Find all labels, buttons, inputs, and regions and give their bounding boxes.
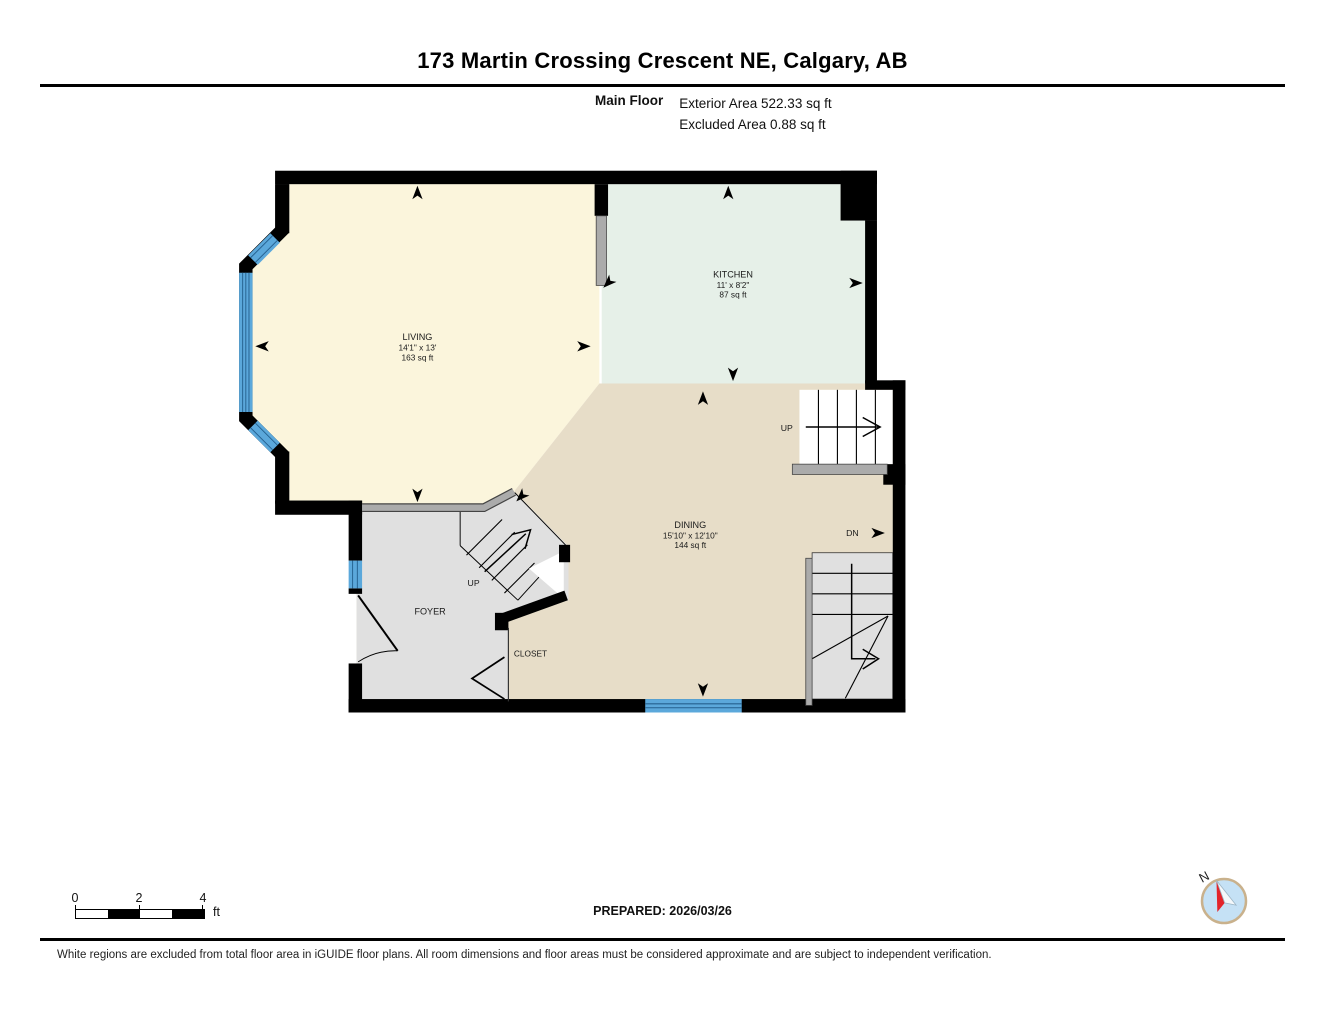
dining-dims: 15'10" x 12'10" [663, 531, 718, 541]
kitchen-dims: 11' x 8'2" [717, 280, 750, 290]
stairs-up-right [799, 390, 892, 464]
living-dims: 14'1" x 13' [398, 342, 436, 352]
closet-label: CLOSET [514, 648, 547, 658]
scale-tick-4: 4 [200, 891, 207, 905]
compass: N [1186, 863, 1262, 939]
dining-label: DINING [674, 520, 706, 530]
living-area: 163 sq ft [402, 353, 435, 363]
exterior-area: Exterior Area 522.33 sq ft [679, 93, 831, 114]
stair-half-wall [792, 464, 887, 474]
living-label: LIVING [403, 332, 433, 342]
foyer-window [349, 561, 362, 589]
page-title: 173 Martin Crossing Crescent NE, Calgary… [0, 48, 1325, 74]
scale-tick-0: 0 [72, 891, 79, 905]
stairs-down [812, 553, 893, 699]
floor-info: Main Floor Exterior Area 522.33 sq ft Ex… [595, 93, 832, 135]
footer-divider [40, 938, 1285, 941]
up-label-foyer: UP [468, 578, 480, 588]
kitchen-area: 87 sq ft [719, 289, 747, 299]
kitchen-counter [596, 216, 606, 286]
disclaimer-text: White regions are excluded from total fl… [57, 949, 1285, 961]
foyer-label: FOYER [414, 606, 446, 616]
floor-plan-page: { "header": { "title": "173 Martin Cross… [0, 0, 1325, 1024]
dn-label: DN [846, 528, 859, 538]
dining-area: 144 sq ft [674, 540, 707, 550]
scale-tick-2: 2 [136, 891, 143, 905]
dining-window [645, 699, 741, 712]
floor-areas: Exterior Area 522.33 sq ft Excluded Area… [679, 93, 831, 135]
floor-label: Main Floor [595, 93, 663, 135]
kitchen-label: KITCHEN [713, 270, 753, 280]
prepared-date: PREPARED: 2026/03/26 [0, 904, 1325, 918]
stairs-down-floor [812, 553, 893, 699]
excluded-area: Excluded Area 0.88 sq ft [679, 114, 831, 135]
stair-side-wall [806, 558, 812, 705]
up-label-right: UP [781, 423, 793, 433]
floor-plan-svg: LIVING 14'1" x 13' 163 sq ft KITCHEN 11'… [230, 140, 1100, 850]
header-divider [40, 84, 1285, 87]
